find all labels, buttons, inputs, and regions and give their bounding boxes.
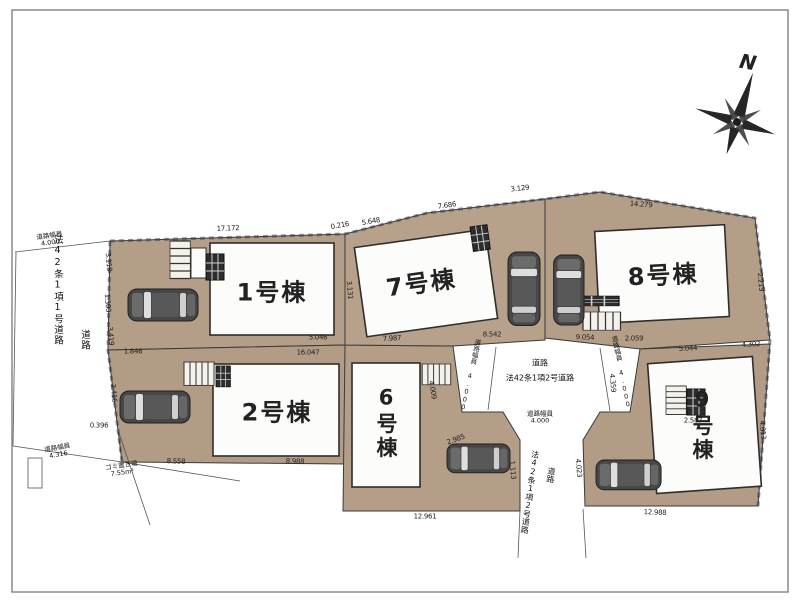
dimension-label: 3.118 [104, 252, 113, 271]
dimension-label: 12.961 [414, 514, 437, 521]
dimension-label: 1.846 [124, 349, 143, 356]
car-icon-lot7 [508, 252, 540, 326]
center-road-name: 法42条1項2号道路 [506, 373, 574, 384]
site-plan-canvas: 1号棟 2号棟 6号棟 7号棟 8号棟 9号棟 法42条1項1号道路 道路 道路… [0, 0, 800, 600]
dimension-label: 4.359 [608, 373, 617, 392]
center-road-type: 道路 [532, 358, 548, 369]
building-1-label: 1号棟 [237, 273, 308, 308]
dimension-label: 12.988 [644, 509, 667, 517]
car-icon-lot6 [447, 444, 510, 473]
dimension-label: 3.419 [106, 326, 115, 345]
dimension-label: 14.279 [629, 201, 652, 210]
car-icon-lot9 [596, 460, 661, 490]
left-road-name: 法42条1項1号道路 [50, 235, 64, 346]
car-icon-lot2 [120, 391, 190, 423]
car-icon-lot8 [554, 255, 584, 325]
dimension-label: 2.213 [756, 272, 765, 291]
dimension-label: 2.416 [109, 383, 118, 402]
dimension-label: 4.302 [742, 341, 761, 349]
dimension-label: 2.059 [625, 336, 644, 343]
dimension-label: 8.542 [483, 332, 502, 339]
dimension-label: 8.558 [167, 458, 186, 466]
dimension-label: 2.587 [684, 418, 703, 425]
car-icon-lot1 [128, 289, 198, 321]
dimension-label: 8.988 [286, 458, 305, 466]
dimension-label: 16.047 [297, 350, 320, 357]
building-2-label: 2号棟 [242, 393, 313, 428]
dimension-label: 5.044 [679, 345, 698, 353]
south-road-type: 道路 [544, 466, 557, 483]
building-9-label: 9号棟 [687, 388, 717, 463]
dimension-label: 7.987 [383, 335, 402, 343]
dimension-label: 3.131 [345, 280, 354, 299]
center-road-width: 道路幅員4.000 [527, 411, 553, 426]
dimension-label: 5.046 [309, 335, 328, 342]
utility-box [28, 458, 42, 488]
dimension-label: 0.396 [90, 423, 109, 430]
dimension-label: 1.113 [508, 460, 517, 479]
compass-rose [683, 59, 791, 171]
left-road-type: 道路 [77, 330, 91, 351]
dimension-label: 1.303 [103, 293, 112, 312]
dimension-label: 4.813 [758, 420, 767, 439]
building-8-label: 8号棟 [627, 254, 699, 293]
dimension-label: 17.172 [217, 225, 240, 233]
dimension-label: 9.054 [576, 334, 595, 342]
building-6-label: 6号棟 [371, 386, 401, 461]
dimension-label: 4.023 [574, 458, 583, 477]
